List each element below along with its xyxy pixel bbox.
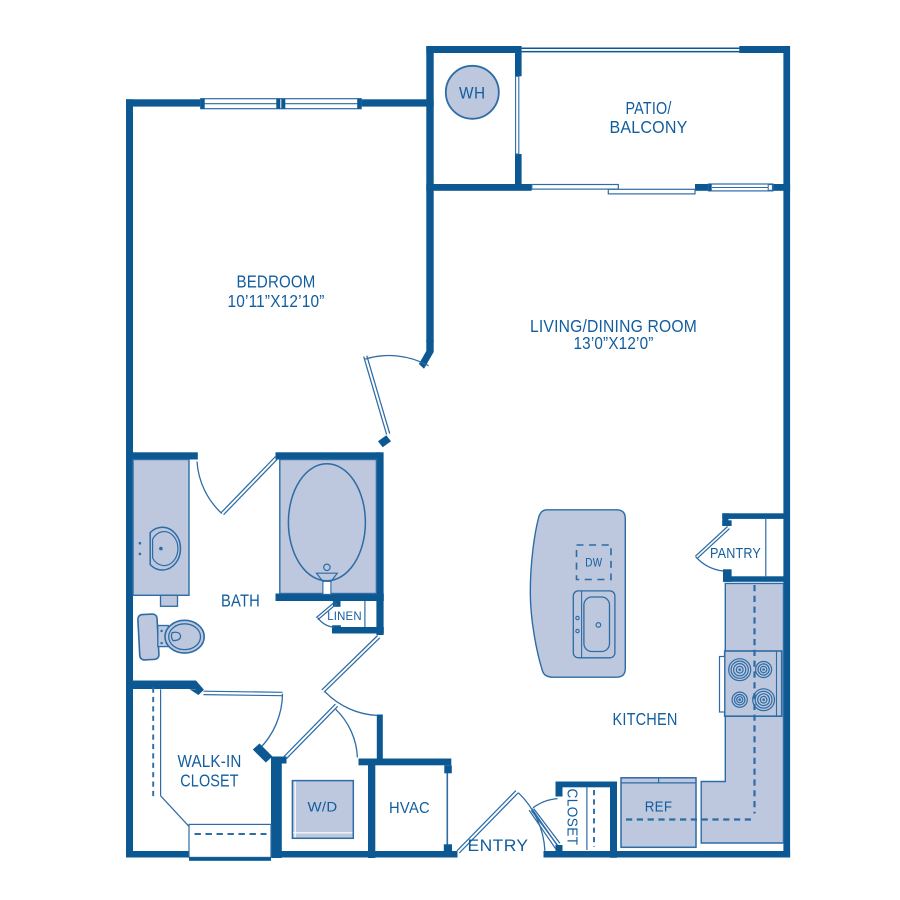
svg-text:ENTRY: ENTRY xyxy=(468,837,529,855)
svg-text:13’0”X12’0”: 13’0”X12’0” xyxy=(574,333,654,353)
svg-text:HVAC: HVAC xyxy=(389,800,430,817)
svg-text:BALCONY: BALCONY xyxy=(610,117,688,137)
svg-text:PANTRY: PANTRY xyxy=(710,546,761,562)
svg-text:BEDROOM: BEDROOM xyxy=(237,272,316,292)
svg-text:CLOSET: CLOSET xyxy=(564,789,581,846)
svg-text:WH: WH xyxy=(459,84,486,103)
svg-text:CLOSET: CLOSET xyxy=(180,771,239,791)
svg-text:BATH: BATH xyxy=(221,591,260,611)
svg-text:LINEN: LINEN xyxy=(327,609,362,623)
svg-text:DW: DW xyxy=(585,556,602,570)
svg-text:W/D: W/D xyxy=(308,799,338,815)
svg-text:10’11”X12’10”: 10’11”X12’10” xyxy=(228,291,325,311)
svg-text:PATIO/: PATIO/ xyxy=(626,98,672,118)
svg-text:REF: REF xyxy=(645,799,673,816)
svg-text:KITCHEN: KITCHEN xyxy=(613,709,678,729)
svg-text:WALK-IN: WALK-IN xyxy=(178,751,242,771)
